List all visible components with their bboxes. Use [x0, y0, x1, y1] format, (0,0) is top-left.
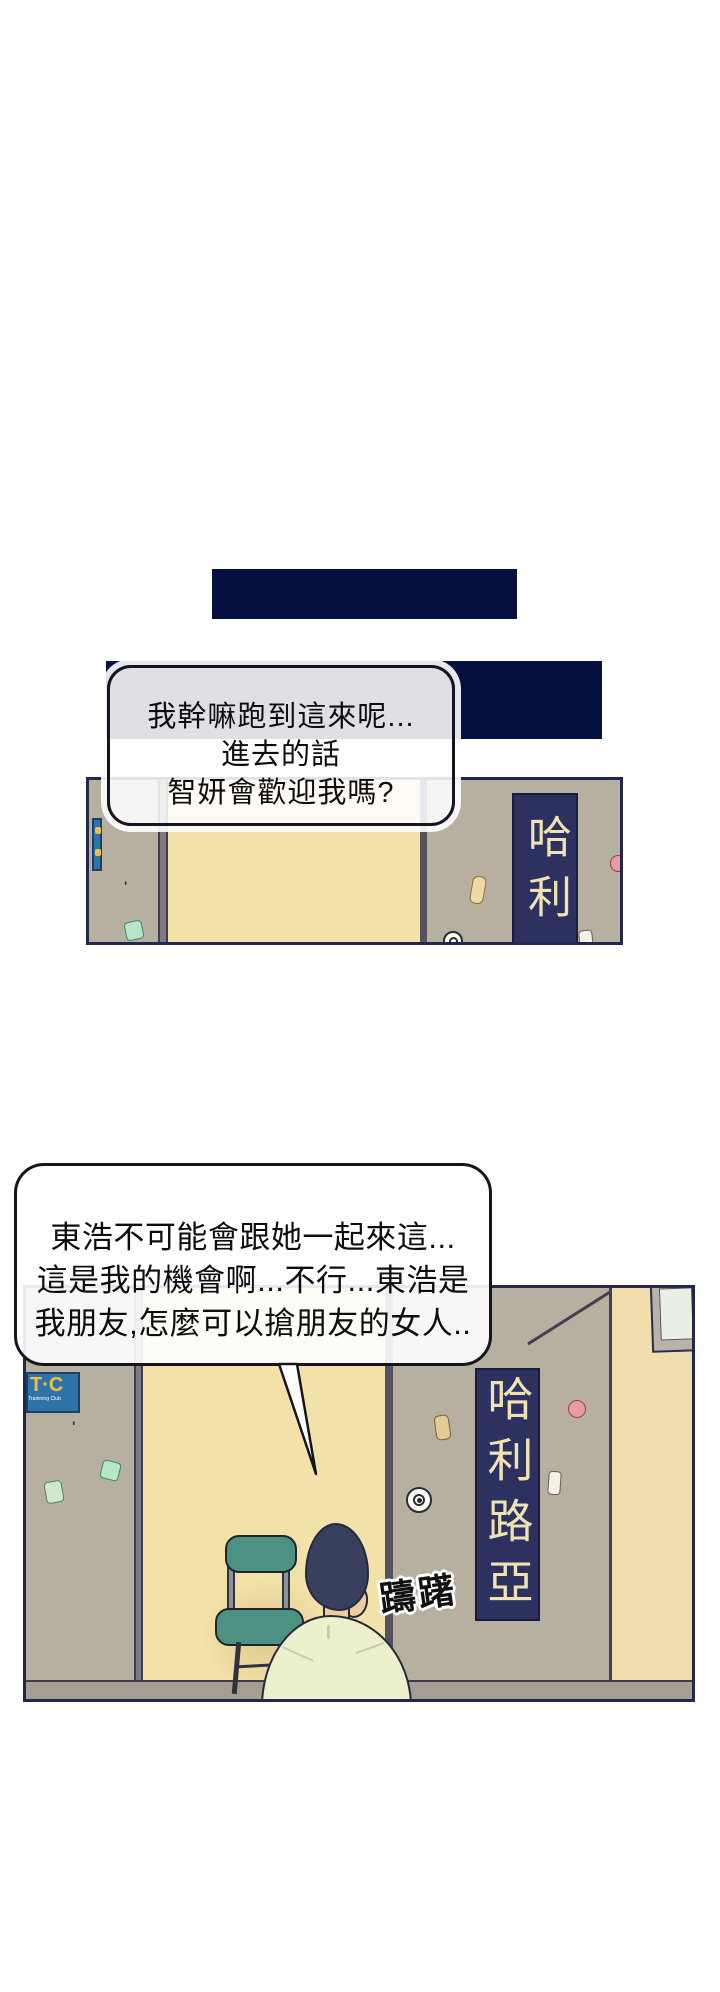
bubble1-line3: 智妍會歡迎我嗎? [110, 774, 452, 812]
bubble2-line3: 我朋友,怎麼可以搶朋友的女人.. [17, 1302, 489, 1345]
webtoon-page: 哈利 ' 我幹嘛跑到這來呢... 進去的話 智妍會歡迎我嗎? [0, 0, 720, 1992]
bubble1-line2: 進去的話 [110, 736, 452, 774]
shirt-fold [282, 1646, 314, 1662]
bubble1-line1: 我幹嘛跑到這來呢... [110, 698, 452, 736]
training-club-sign: T·C Trainning Club [26, 1372, 80, 1413]
white-sticker [578, 929, 594, 945]
training-club-sign-cut [92, 818, 102, 871]
shirt-fold [327, 1625, 330, 1639]
tc-sign-subtitle: Trainning Club [28, 1396, 71, 1401]
tan-sticker [433, 1414, 451, 1441]
wall-mark: ' [72, 1418, 75, 1434]
pink-round-sticker [610, 855, 623, 872]
door-name-sign: 哈利路亞 [475, 1368, 540, 1621]
wall-mark: ' [124, 878, 127, 894]
window [650, 1285, 695, 1353]
bubble2-line1: 東浩不可能會跟她一起來這... [17, 1216, 489, 1259]
yellow-sticker [469, 875, 488, 905]
mint-sticker [99, 1459, 122, 1482]
shirt-fold [356, 1642, 385, 1654]
window-glass [659, 1287, 694, 1340]
sign-dot [95, 849, 101, 856]
keyhole-icon [406, 1487, 432, 1513]
wall-top-diagonal [524, 1288, 614, 1348]
keyhole-icon [443, 931, 463, 945]
chair-post [282, 1566, 290, 1614]
chair-backrest [225, 1535, 297, 1573]
door-sign-text: 哈利 [513, 814, 577, 934]
sfx-hesitation: 躊躇 [376, 1561, 460, 1623]
sign-dot [95, 827, 101, 834]
mint-sticker [43, 1480, 65, 1505]
speech-bubble-2: 東浩不可能會跟她一起來這... 這是我的機會啊...不行...東浩是 我朋友,怎… [14, 1163, 492, 1366]
speech-bubble-1: 我幹嘛跑到這來呢... 進去的話 智妍會歡迎我嗎? [107, 665, 455, 826]
keyhole-dot [417, 1498, 422, 1503]
door-sign-text: 哈利路亞 [475, 1375, 541, 1619]
bubble2-line2: 這是我的機會啊...不行...東浩是 [17, 1259, 489, 1302]
mint-sticker [123, 919, 145, 941]
pink-round-sticker [568, 1400, 586, 1418]
white-sticker [547, 1471, 562, 1496]
speech-bubble-tail [270, 1358, 330, 1480]
keyhole-ring [449, 937, 458, 945]
tc-sign-title: T·C [28, 1374, 78, 1396]
scene-transition-bar-top [212, 569, 517, 619]
door-name-sign: 哈利 [512, 793, 578, 945]
chair-post [227, 1566, 235, 1614]
